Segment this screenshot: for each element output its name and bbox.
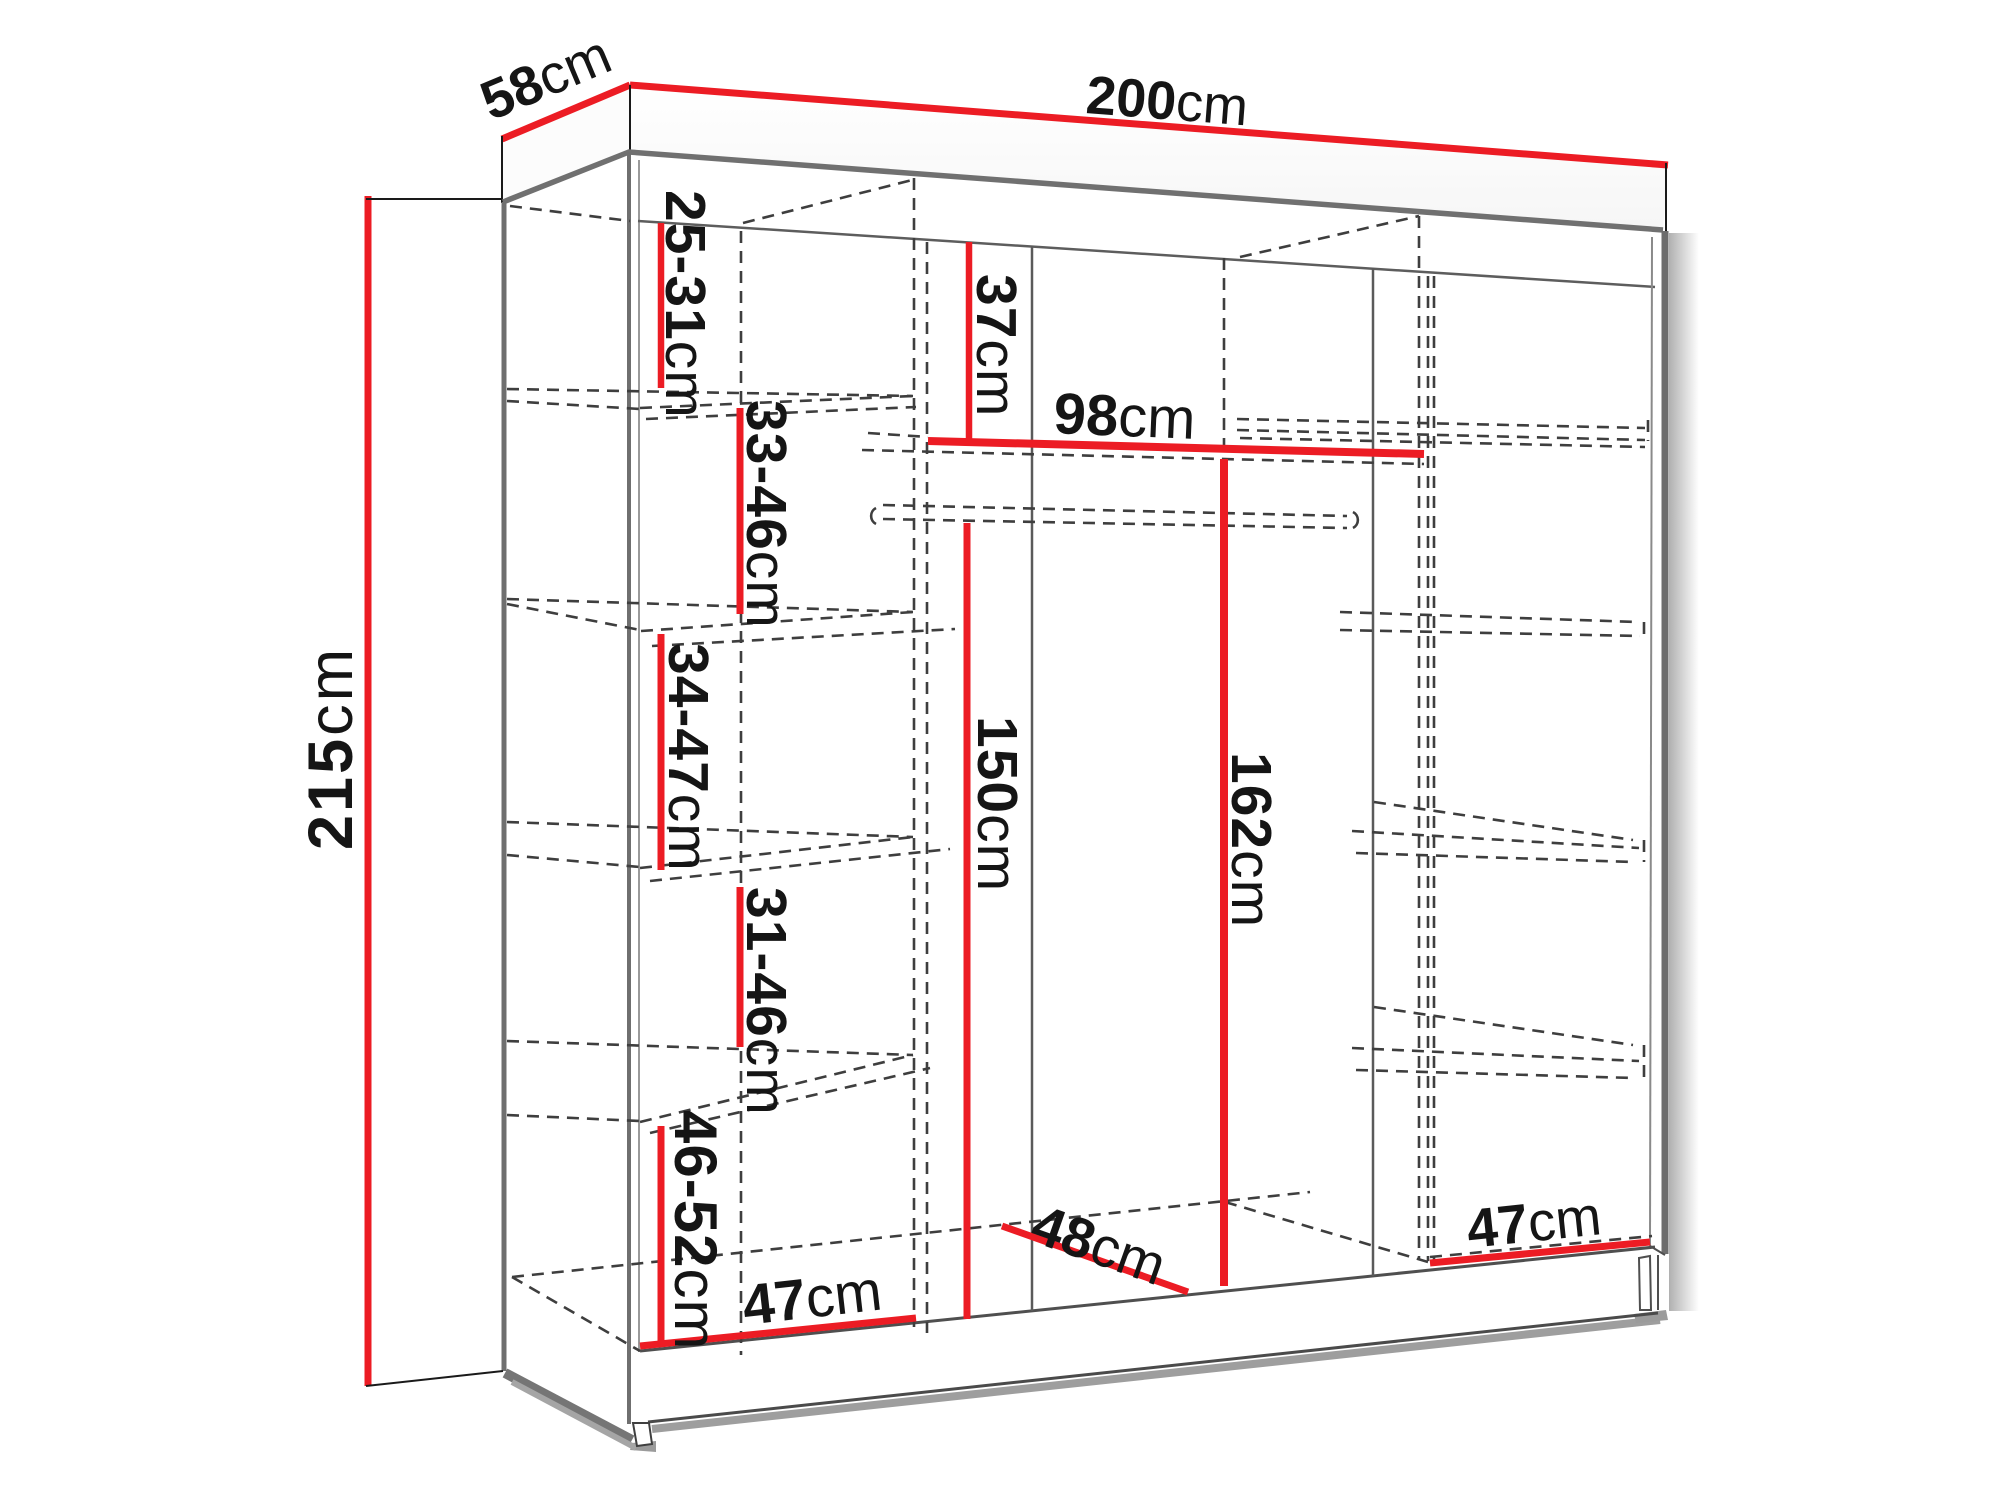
svg-text:34-47cm: 34-47cm <box>656 643 720 872</box>
svg-text:25-31cm: 25-31cm <box>653 190 717 419</box>
svg-text:200cm: 200cm <box>1084 65 1250 137</box>
svg-text:46-52cm: 46-52cm <box>662 1110 729 1350</box>
svg-text:162cm: 162cm <box>1219 752 1283 928</box>
svg-text:37cm: 37cm <box>964 274 1028 417</box>
svg-text:150cm: 150cm <box>965 716 1029 892</box>
svg-text:215cm: 215cm <box>296 646 366 850</box>
svg-text:33-46cm: 33-46cm <box>734 400 798 629</box>
svg-text:98cm: 98cm <box>1052 381 1196 452</box>
svg-text:31-46cm: 31-46cm <box>734 887 798 1116</box>
